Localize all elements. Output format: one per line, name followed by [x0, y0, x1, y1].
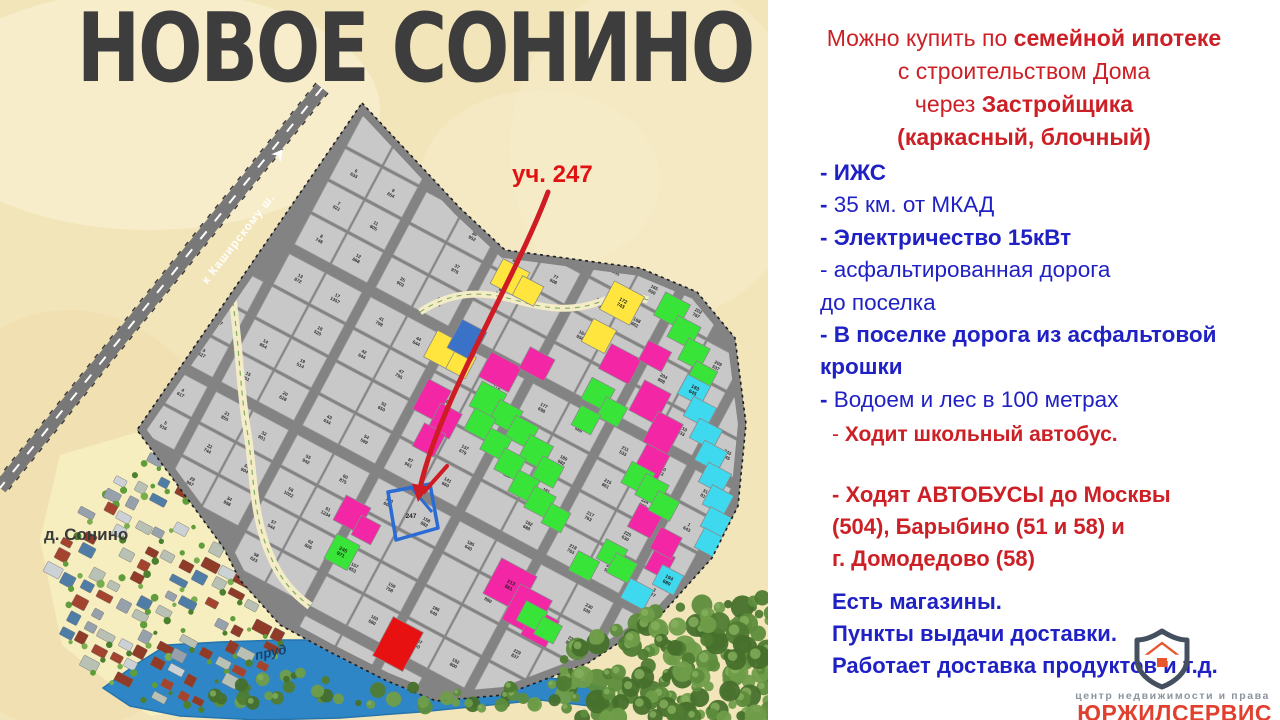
forest-tree-highlight — [612, 666, 619, 673]
forest-tree-highlight — [574, 669, 584, 679]
text-segment: - В поселке дорога из асфальтовой — [820, 322, 1217, 347]
text-segment: Ходят АВТОБУСЫ до Москвы — [845, 482, 1170, 507]
forest-tree-highlight — [604, 688, 610, 694]
forest-tree-highlight — [572, 694, 576, 698]
text-segment: - — [820, 387, 834, 412]
highlight-plot-label: уч. 247 — [512, 161, 593, 188]
forest-tree-highlight — [563, 704, 568, 709]
map-panel: 1643263736274617591666337921874896541180… — [0, 0, 768, 720]
text-line: (504), Барыбино (51 и 58) и — [832, 511, 1171, 543]
forest-tree-highlight — [478, 705, 482, 709]
forest-tree — [708, 660, 720, 672]
text-segment: (504), Барыбино (51 и 58) и — [832, 514, 1125, 539]
forest-tree — [518, 693, 529, 704]
forest-tree — [560, 655, 569, 664]
forest-tree — [560, 666, 569, 675]
text-segment: (каркасный, блочный) — [897, 124, 1151, 150]
slide: 1643263736274617591666337921874896541180… — [0, 0, 1280, 720]
forest-tree-highlight — [604, 670, 609, 675]
forest-tree — [728, 701, 736, 709]
text-line: - 35 км. от МКАД — [820, 189, 1217, 221]
text-segment: Можно купить по — [827, 25, 1014, 51]
forest-tree — [700, 634, 713, 647]
text-segment: - — [832, 482, 845, 507]
school-bus-note: - Ходит школьный автобус. — [832, 422, 1118, 448]
forest-tree — [719, 681, 740, 702]
features-list: - ИЖС- 35 км. от МКАД- Электричество 15к… — [820, 157, 1217, 416]
text-line: до поселка — [820, 287, 1217, 319]
forest-tree-highlight — [699, 652, 709, 662]
text-line: - Ходит школьный автобус. — [832, 422, 1118, 448]
forest-tree-highlight — [688, 617, 698, 627]
text-segment: до поселка — [820, 290, 936, 315]
forest-tree — [295, 668, 306, 679]
text-segment: Застройщика — [982, 91, 1133, 117]
forest-tree-highlight — [641, 609, 648, 616]
estate-map: 1643263736274617591666337921874896541180… — [0, 0, 768, 720]
forest-tree — [322, 676, 330, 684]
forest-tree — [549, 694, 561, 706]
forest-tree-highlight — [257, 674, 263, 680]
forest-tree — [333, 694, 344, 705]
forest-tree — [676, 603, 685, 612]
text-segment: с строительством Дома — [898, 58, 1150, 84]
forest-tree-highlight — [574, 641, 582, 649]
plot-247-number: 247 — [406, 513, 417, 520]
forest-tree — [733, 635, 752, 654]
forest-tree — [235, 678, 248, 691]
shield-house-icon — [1130, 624, 1194, 690]
forest-tree — [755, 610, 764, 619]
text-segment: - Электричество 15кВт — [820, 225, 1071, 250]
text-segment: - асфальтированная дорога — [820, 257, 1110, 282]
text-segment: Есть магазины. — [832, 589, 1002, 614]
forest-tree — [527, 697, 542, 712]
forest-tree-highlight — [692, 671, 699, 678]
text-segment: семейной ипотеке — [1014, 25, 1222, 51]
text-line: г. Домодедово (58) — [832, 543, 1171, 575]
forest-tree-highlight — [549, 681, 553, 685]
info-panel: Можно купить по семейной ипотекес строит… — [768, 0, 1280, 720]
text-segment: - — [820, 192, 834, 217]
forest-tree — [264, 691, 273, 700]
forest-tree — [580, 709, 588, 717]
text-segment: - — [832, 423, 845, 446]
text-line: - Водоем и лес в 100 метрах — [820, 384, 1217, 416]
forest-tree-highlight — [667, 705, 676, 714]
forest-tree-highlight — [758, 683, 765, 690]
forest-tree-highlight — [455, 690, 459, 694]
mortgage-header: Можно купить по семейной ипотекес строит… — [768, 22, 1280, 154]
forest-tree — [370, 682, 386, 698]
village-label: д. Сонино — [44, 525, 128, 544]
text-line: Есть магазины. — [832, 586, 1218, 618]
forest-tree — [662, 672, 672, 682]
forest-tree — [464, 699, 473, 708]
text-line: (каркасный, блочный) — [768, 121, 1280, 154]
forest-tree-highlight — [729, 624, 740, 635]
text-line: через Застройщика — [768, 88, 1280, 121]
forest-tree-highlight — [624, 681, 632, 689]
text-line: - В поселке дорога из асфальтовой — [820, 319, 1217, 351]
text-segment: 35 км. от МКАД — [834, 192, 995, 217]
text-segment: Водоем и лес в 100 метрах — [834, 387, 1119, 412]
forest-tree-highlight — [728, 651, 738, 661]
forest-tree — [667, 640, 683, 656]
forest-tree-highlight — [651, 621, 660, 630]
text-line: - Электричество 15кВт — [820, 222, 1217, 254]
logo-name: ЮРЖИЛСЕРВИС — [1077, 700, 1272, 720]
forest-tree-highlight — [506, 682, 511, 687]
forest-tree-highlight — [635, 698, 644, 707]
bus-routes-note: - Ходят АВТОБУСЫ до Москвы(504), Барыбин… — [832, 479, 1171, 575]
text-line: с строительством Дома — [768, 55, 1280, 88]
forest-tree-highlight — [626, 633, 633, 640]
text-line: - ИЖС — [820, 157, 1217, 189]
forest-tree — [672, 661, 693, 682]
company-logo: центр недвижимости и права ЮРЖИЛСЕРВИС — [1044, 638, 1274, 720]
forest-tree — [355, 700, 361, 706]
estate-title: НОВОЕ СОНИНО — [77, 0, 691, 104]
forest-tree — [407, 682, 419, 694]
forest-tree-highlight — [715, 603, 720, 608]
forest-tree-highlight — [688, 711, 695, 718]
forest-tree-highlight — [702, 609, 709, 616]
forest-tree — [418, 696, 430, 708]
forest-tree-highlight — [248, 698, 254, 704]
text-line: - Ходят АВТОБУСЫ до Москвы — [832, 479, 1171, 511]
text-segment: крошки — [820, 354, 903, 379]
forest-tree — [311, 685, 324, 698]
forest-tree-highlight — [656, 635, 662, 641]
text-segment: г. Домодедово (58) — [832, 546, 1035, 571]
text-segment: - ИЖС — [820, 160, 886, 185]
forest-tree-highlight — [502, 692, 507, 697]
text-line: - асфальтированная дорога — [820, 254, 1217, 286]
text-segment: через — [915, 91, 982, 117]
text-line: крошки — [820, 351, 1217, 383]
forest-tree-highlight — [612, 625, 618, 631]
forest-tree-highlight — [671, 620, 679, 628]
text-line: Можно купить по семейной ипотеке — [768, 22, 1280, 55]
forest-tree — [558, 681, 567, 690]
forest-tree — [495, 698, 509, 712]
forest-tree-highlight — [649, 711, 656, 718]
forest-tree — [283, 676, 290, 683]
forest-tree — [283, 681, 295, 693]
forest-tree-highlight — [750, 648, 761, 659]
text-segment: Ходит школьный автобус. — [845, 423, 1118, 446]
forest-tree-highlight — [367, 701, 371, 705]
forest-tree — [700, 616, 717, 633]
forest-tree-highlight — [634, 669, 644, 679]
forest-tree-highlight — [210, 690, 216, 696]
forest-tree — [386, 691, 401, 706]
forest-tree — [440, 691, 454, 705]
forest-tree — [589, 629, 605, 645]
